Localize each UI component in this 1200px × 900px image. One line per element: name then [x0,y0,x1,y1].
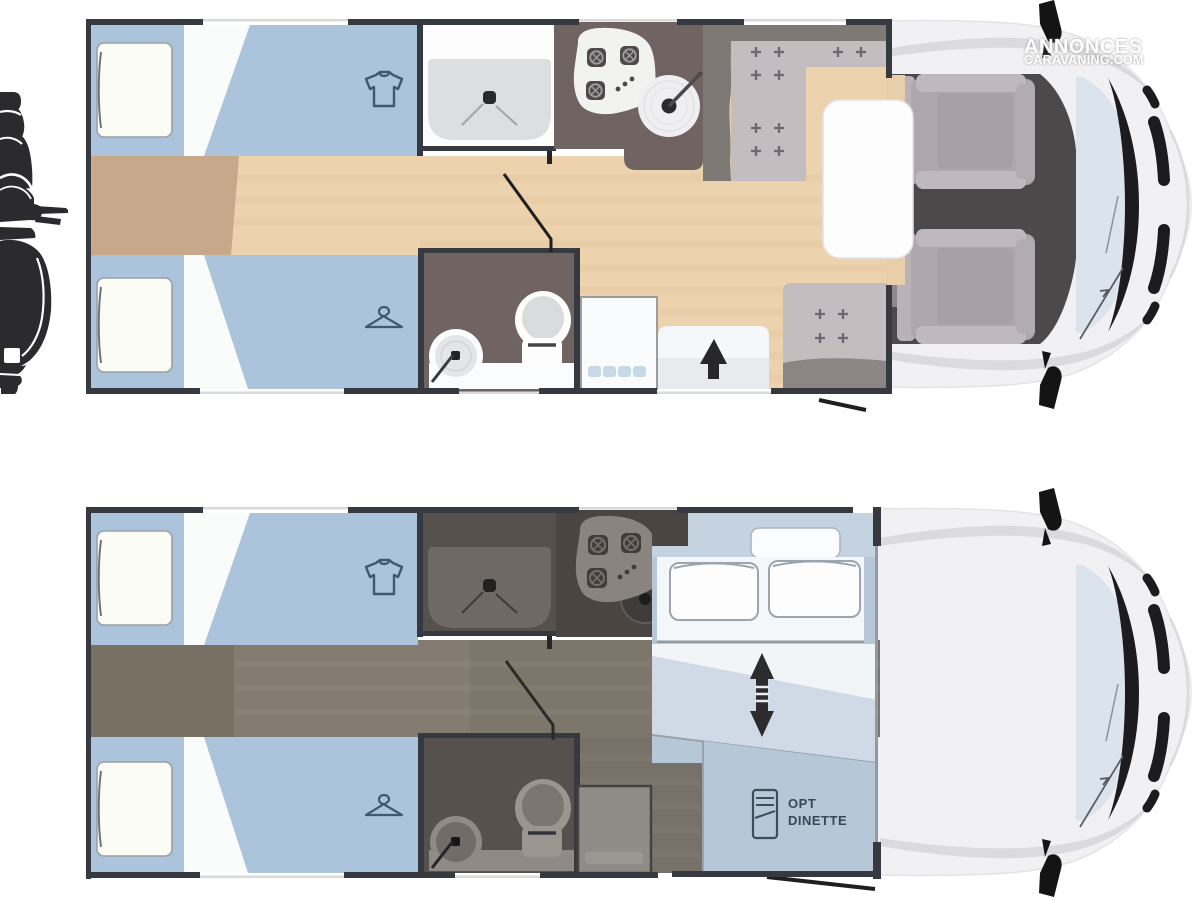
svg-text:CARAVANING.COM: CARAVANING.COM [1024,53,1144,67]
svg-text:OPT: OPT [788,796,816,811]
svg-text:DINETTE: DINETTE [788,813,847,828]
